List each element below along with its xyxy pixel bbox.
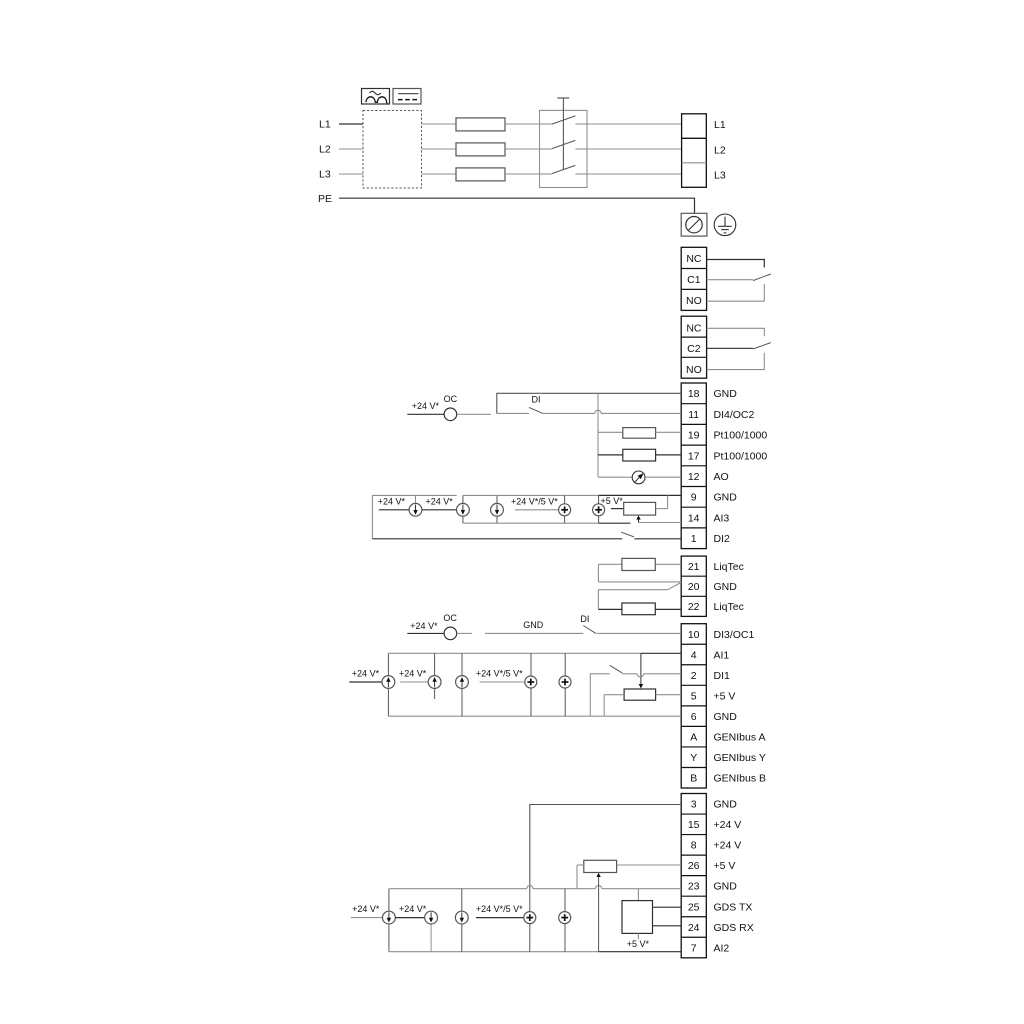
svg-text:19: 19 [688, 430, 700, 442]
svg-text:LiqTec: LiqTec [714, 601, 744, 613]
svg-text:L2: L2 [319, 144, 331, 156]
svg-text:24: 24 [688, 922, 700, 934]
svg-text:+24 V*: +24 V* [426, 497, 454, 507]
svg-text:11: 11 [688, 409, 699, 421]
svg-text:18: 18 [688, 388, 700, 400]
svg-text:3: 3 [691, 799, 697, 811]
svg-text:+24 V*/5 V*: +24 V*/5 V* [476, 669, 523, 679]
svg-text:+24 V*: +24 V* [352, 669, 380, 679]
svg-text:+24 V*/5 V*: +24 V*/5 V* [511, 497, 558, 507]
svg-text:OC: OC [443, 613, 457, 623]
svg-text:GND: GND [714, 881, 738, 893]
svg-text:GND: GND [714, 581, 738, 593]
svg-text:LiqTec: LiqTec [714, 561, 744, 573]
svg-text:+24 V*: +24 V* [399, 904, 427, 914]
svg-text:12: 12 [688, 471, 700, 483]
svg-text:8: 8 [691, 840, 697, 852]
svg-text:GND: GND [523, 620, 544, 630]
svg-text:L1: L1 [319, 119, 331, 131]
svg-text:Pt100/1000: Pt100/1000 [714, 430, 768, 442]
svg-text:1: 1 [691, 533, 697, 545]
svg-text:+24 V*: +24 V* [412, 401, 440, 411]
svg-text:L3: L3 [319, 169, 331, 181]
svg-text:AI1: AI1 [714, 649, 730, 661]
svg-text:DI2: DI2 [714, 533, 731, 545]
svg-text:GND: GND [714, 711, 738, 723]
svg-text:+24 V*: +24 V* [378, 497, 406, 507]
svg-text:2: 2 [691, 670, 697, 682]
svg-text:NC: NC [686, 253, 702, 265]
svg-text:+24 V: +24 V [714, 819, 742, 831]
svg-text:DI4/OC2: DI4/OC2 [714, 409, 755, 421]
svg-text:AI3: AI3 [714, 512, 730, 524]
svg-text:+24 V*/5 V*: +24 V*/5 V* [476, 904, 523, 914]
svg-text:20: 20 [688, 581, 700, 593]
svg-text:22: 22 [688, 601, 700, 613]
svg-text:L2: L2 [714, 145, 726, 157]
svg-text:DI: DI [532, 394, 541, 404]
svg-text:GENIbus Y: GENIbus Y [714, 752, 766, 764]
svg-text:NO: NO [686, 295, 702, 307]
svg-text:GDS TX: GDS TX [714, 901, 753, 913]
svg-text:14: 14 [688, 512, 700, 524]
svg-text:OC: OC [444, 394, 458, 404]
svg-text:GDS RX: GDS RX [714, 922, 754, 934]
svg-text:A: A [690, 731, 697, 743]
svg-text:10: 10 [688, 629, 700, 641]
svg-text:GND: GND [714, 492, 738, 504]
svg-text:B: B [690, 773, 697, 785]
svg-text:GENIbus A: GENIbus A [714, 731, 766, 743]
svg-text:5: 5 [691, 690, 697, 702]
svg-text:4: 4 [691, 649, 697, 661]
svg-text:Pt100/1000: Pt100/1000 [714, 450, 768, 462]
svg-text:23: 23 [688, 881, 700, 893]
svg-text:6: 6 [691, 711, 697, 723]
svg-text:+5 V: +5 V [714, 860, 736, 872]
svg-text:+5 V: +5 V [714, 690, 736, 702]
svg-text:C2: C2 [687, 343, 701, 355]
svg-text:+5 V*: +5 V* [601, 496, 624, 506]
svg-text:GENIbus B: GENIbus B [714, 773, 767, 785]
svg-text:21: 21 [688, 561, 700, 573]
svg-text:25: 25 [688, 901, 700, 913]
svg-text:17: 17 [688, 450, 700, 462]
svg-text:AO: AO [714, 471, 729, 483]
svg-text:7: 7 [691, 942, 697, 954]
svg-text:GND: GND [714, 388, 738, 400]
svg-text:DI3/OC1: DI3/OC1 [714, 629, 755, 641]
svg-text:15: 15 [688, 819, 700, 831]
svg-text:+5 V*: +5 V* [627, 939, 650, 949]
svg-text:L3: L3 [714, 170, 726, 182]
svg-text:26: 26 [688, 860, 700, 872]
svg-text:AI2: AI2 [714, 942, 730, 954]
svg-text:DI1: DI1 [714, 670, 731, 682]
svg-text:NO: NO [686, 364, 702, 376]
svg-text:+24 V*: +24 V* [352, 904, 380, 914]
svg-text:DI: DI [580, 614, 589, 624]
svg-text:9: 9 [691, 492, 697, 504]
svg-text:C1: C1 [687, 274, 701, 286]
svg-text:L1: L1 [714, 119, 726, 131]
svg-text:+24 V: +24 V [714, 840, 742, 852]
svg-text:NC: NC [686, 323, 702, 335]
svg-text:PE: PE [318, 193, 332, 205]
svg-text:+24 V*: +24 V* [399, 669, 427, 679]
svg-text:Y: Y [690, 752, 697, 764]
svg-text:+24 V*: +24 V* [410, 621, 438, 631]
svg-text:GND: GND [714, 799, 738, 811]
